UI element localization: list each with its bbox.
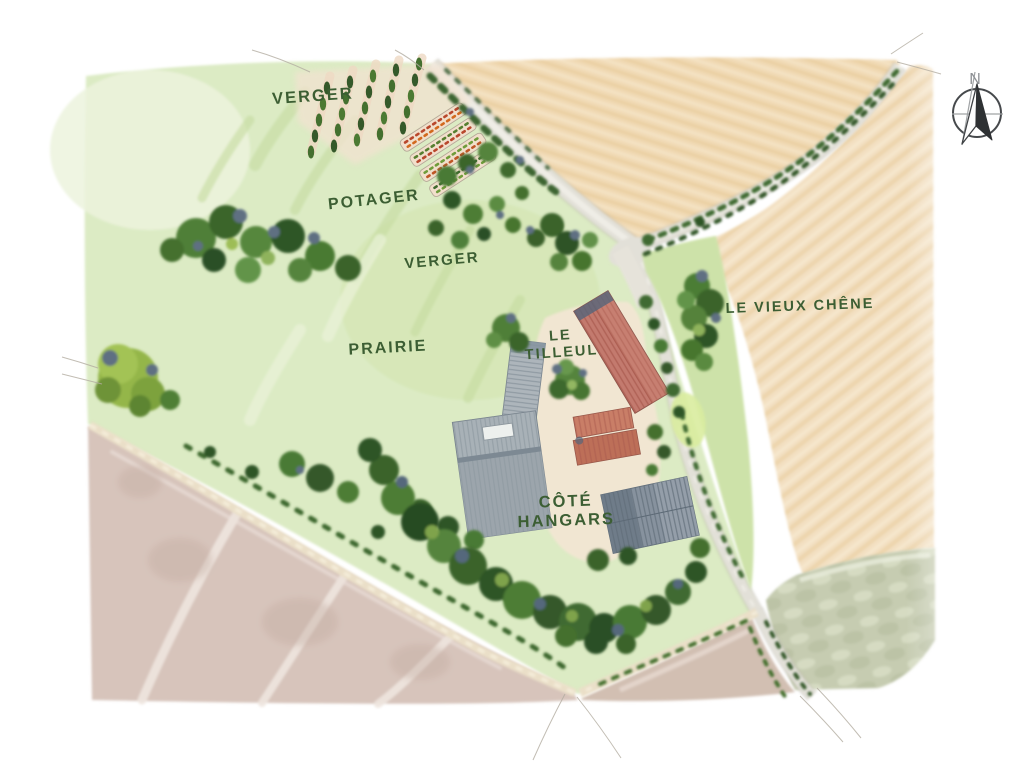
compass-north-letter: N — [969, 71, 981, 88]
map-canvas: N — [0, 0, 1024, 768]
paper-edge-fade — [905, 40, 1024, 740]
main-hangar-building — [452, 411, 552, 540]
watercolor-farm-map: N VERGER POTAGER VERGER PRAIRIE LE TILLE… — [0, 0, 1024, 768]
